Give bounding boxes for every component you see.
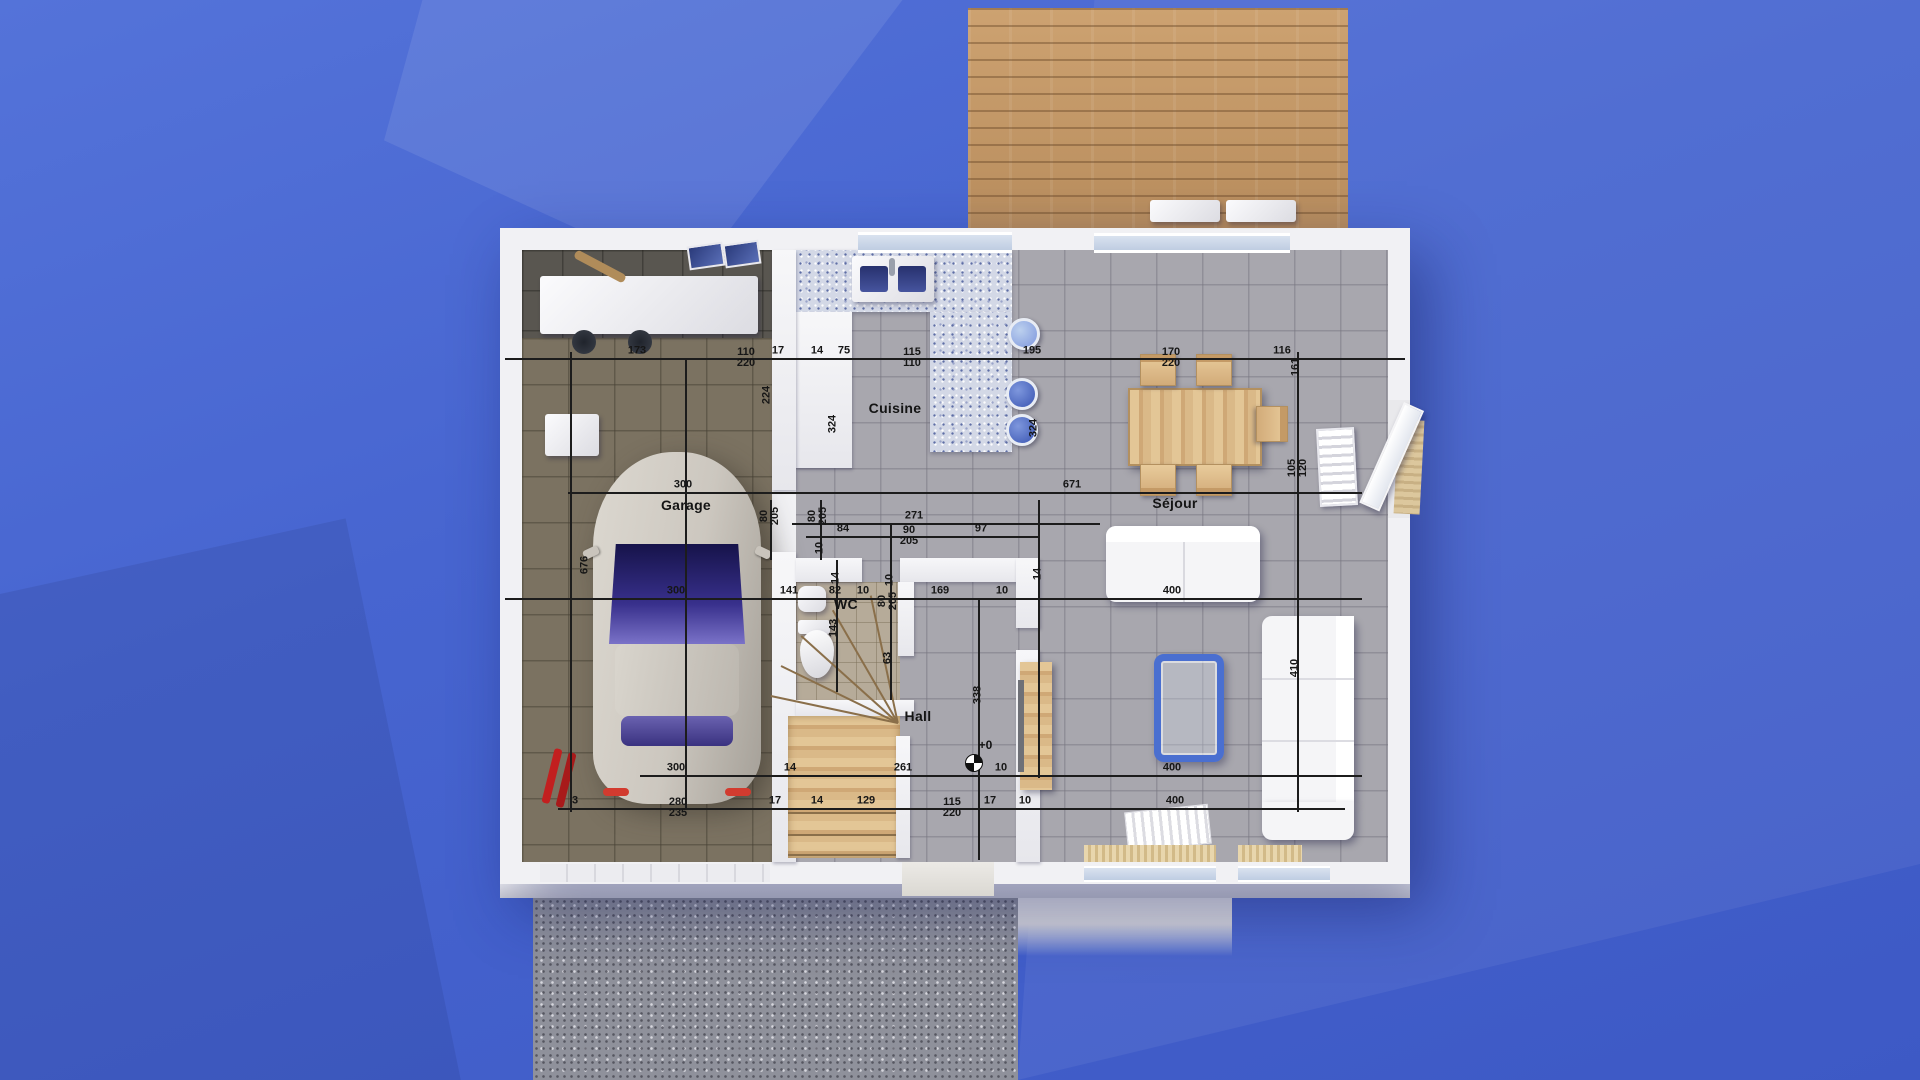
bar-stool [1008,318,1040,350]
water-heater [545,414,599,456]
sink-basin [860,266,888,292]
burner-circle [572,330,596,354]
stair-step-line [788,834,900,836]
stair-step-line [788,854,900,856]
partition-sejour [1016,558,1040,628]
scene: 1731102201714751151101951702201163006712… [0,0,1920,1080]
stair-step-line [788,812,900,814]
skylight-panel [723,240,762,269]
dining-chair [1140,464,1176,496]
garage-door [540,864,770,882]
skylight-panel [687,242,726,271]
window-glass [1084,866,1216,882]
kitchen-peninsula [930,312,1012,452]
sliding-door-panel [1150,200,1220,222]
coffee-table [1154,654,1224,762]
sliding-door-glass [1094,233,1290,253]
room-label-garage: Garage [661,497,711,513]
bar-stool [1006,378,1038,410]
washbasin [798,586,826,612]
tv-cabinet [1020,662,1052,790]
curtain-blind [1084,845,1216,862]
car-windshield [609,544,745,644]
tv-screen [1018,680,1024,772]
kitchen-window [858,232,1012,253]
room-label-cuisine: Cuisine [869,400,922,416]
gravel-driveway [533,884,1018,1080]
partition-wc-top [796,558,862,582]
stair-railing [896,736,910,858]
corner-sofa [1262,616,1354,802]
radiator [1316,427,1358,507]
sofa-two-seat [1106,526,1260,602]
partition-hall-top [900,558,1016,582]
corner-sofa-end [1262,802,1354,840]
kitchen-counter-left [796,312,852,468]
level-marker-label: +0 [979,738,993,752]
partition-wc-right [898,582,914,656]
car-taillight [725,788,751,796]
room-label-wc: WC [834,596,858,612]
room-label-hall: Hall [905,708,932,724]
burner-circle [628,330,652,354]
level-marker [965,754,983,772]
dining-chair [1256,406,1288,442]
car-roof [615,644,739,716]
dining-chair [1196,354,1232,386]
partition-garage [772,250,796,490]
curtain-blind [1238,845,1302,862]
dining-chair [1140,354,1176,386]
car-taillight [603,788,629,796]
dining-chair [1196,464,1232,496]
window-glass [1238,866,1330,882]
garage-storage-unit [540,276,758,334]
dining-table [1128,388,1262,466]
staircase [788,716,900,858]
entry-threshold [902,862,994,896]
sink-basin [898,266,926,292]
sliding-door-panel [1226,200,1296,222]
car-rear-window [621,716,733,746]
bar-stool [1006,414,1038,446]
room-label-sejour: Séjour [1152,495,1197,511]
faucet [889,258,895,276]
